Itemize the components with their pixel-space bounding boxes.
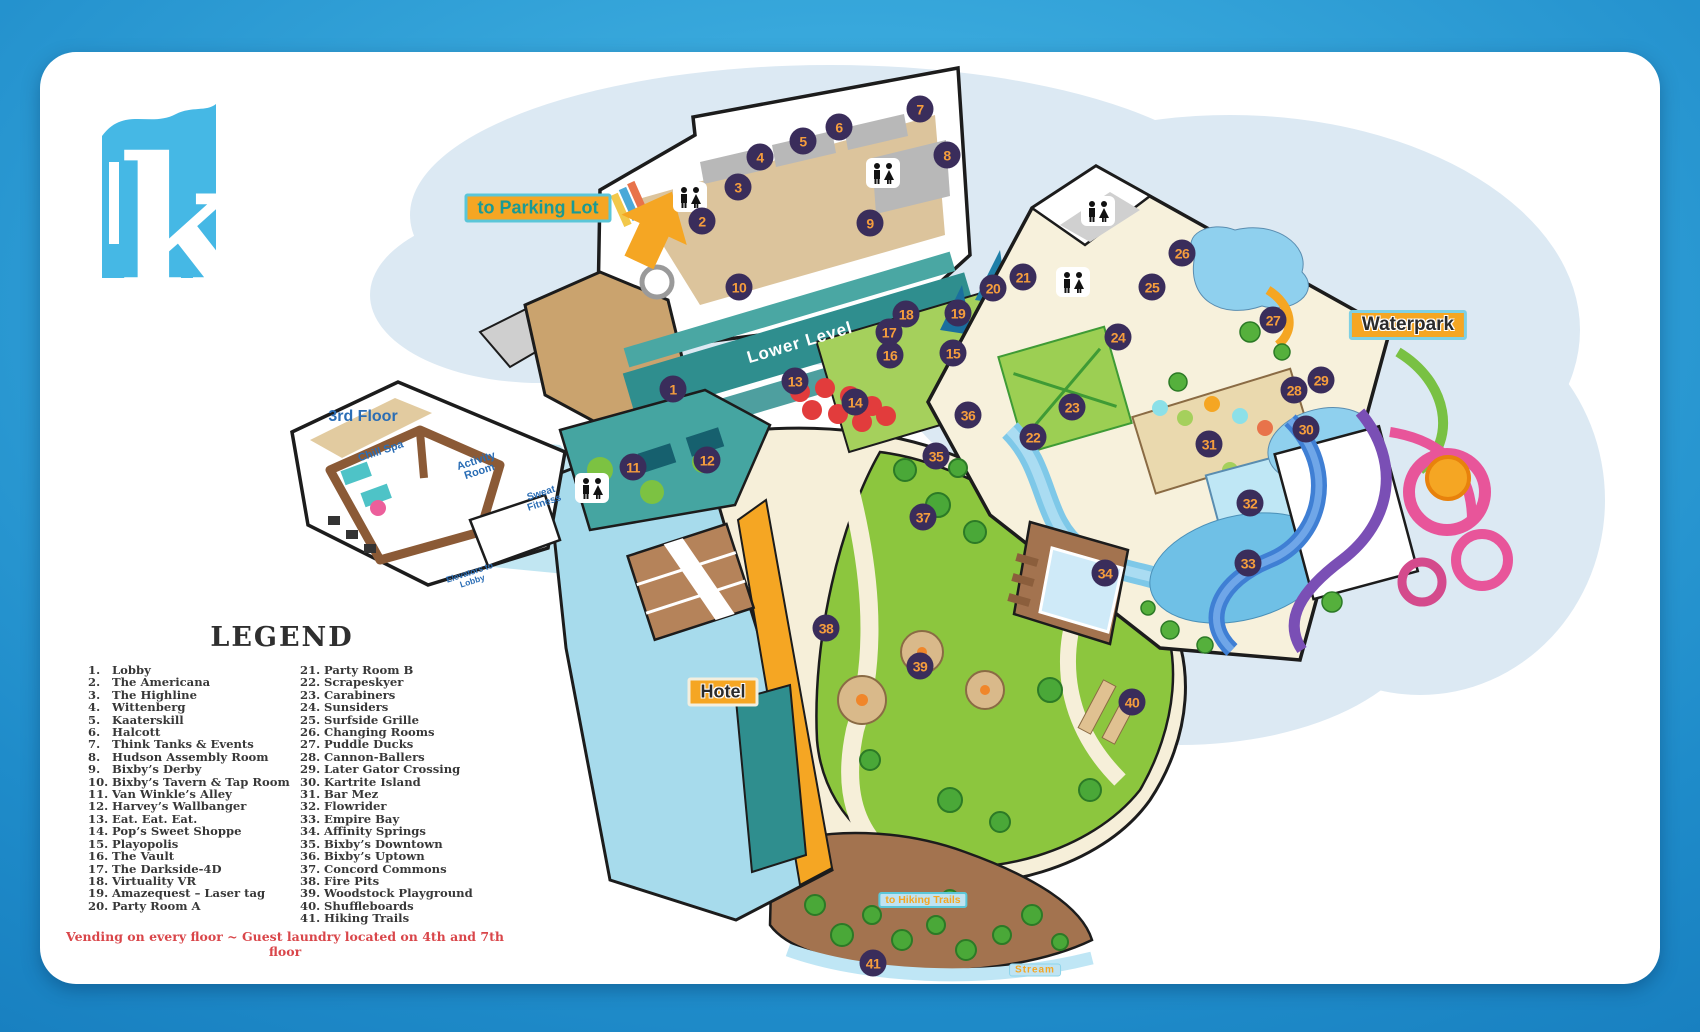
legend-item-label: Amazequest – Laser tag: [112, 887, 290, 899]
legend-item-number: 19.: [88, 887, 112, 899]
legend-item-number: 22.: [300, 676, 324, 688]
legend-item: 29.Later Gator Crossing: [300, 763, 528, 775]
legend-item: 24.Sunsiders: [300, 701, 528, 713]
map-marker: 11: [620, 454, 647, 481]
legend-item-number: 29.: [300, 763, 324, 775]
legend-item: 9.Bixby’s Derby: [88, 763, 290, 775]
legend-item-number: 36.: [300, 850, 324, 862]
legend-item: 14.Pop’s Sweet Shoppe: [88, 825, 290, 837]
map-marker: 23: [1059, 394, 1086, 421]
legend-item: 22.Scrapeskyer: [300, 676, 528, 688]
legend-item-label: Bixby’s Derby: [112, 763, 290, 775]
legend-item-label: Affinity Springs: [324, 825, 528, 837]
restroom-icon: [575, 473, 609, 503]
map-marker: 3: [725, 174, 752, 201]
legend-list: 1.Lobby2.The Americana3.The Highline4.Wi…: [88, 664, 528, 925]
legend-item: 39.Woodstock Playground: [300, 887, 528, 899]
legend-title: LEGEND: [82, 622, 482, 653]
map-marker: 37: [910, 504, 937, 531]
legend-item-label: Hiking Trails: [324, 912, 528, 924]
legend-item-label: The Americana: [112, 676, 290, 688]
legend-column-1: 1.Lobby2.The Americana3.The Highline4.Wi…: [88, 664, 290, 925]
legend-item-label: Bixby’s Uptown: [324, 850, 528, 862]
restroom-icon: [866, 158, 900, 188]
map-marker: 18: [893, 301, 920, 328]
map-marker: 33: [1235, 550, 1262, 577]
map-marker: 35: [923, 443, 950, 470]
resort-map-page: k: [0, 0, 1700, 1032]
legend-item-label: Woodstock Playground: [324, 887, 528, 899]
map-marker: 1: [660, 376, 687, 403]
map-marker: 2: [689, 208, 716, 235]
hotel-label: Hotel: [688, 678, 759, 707]
legend-item-number: 34.: [300, 825, 324, 837]
legend-item-number: 7.: [88, 738, 112, 750]
legend-item-label: Puddle Ducks: [324, 738, 528, 750]
map-marker: 27: [1260, 307, 1287, 334]
legend-item: 20.Party Room A: [88, 900, 290, 912]
map-marker: 30: [1293, 416, 1320, 443]
legend-item: 4.Wittenberg: [88, 701, 290, 713]
map-marker: 14: [842, 389, 869, 416]
legend-item: 2.The Americana: [88, 676, 290, 688]
map-marker: 38: [813, 615, 840, 642]
legend-item-label: The Vault: [112, 850, 290, 862]
map-marker: 9: [857, 210, 884, 237]
map-marker: 16: [877, 342, 904, 369]
legend-item: 16.The Vault: [88, 850, 290, 862]
map-marker: 21: [1010, 264, 1037, 291]
map-marker: 26: [1169, 240, 1196, 267]
map-marker: 39: [907, 653, 934, 680]
legend-item-label: Wittenberg: [112, 701, 290, 713]
map-marker: 20: [980, 275, 1007, 302]
legend-item-number: 41.: [300, 912, 324, 924]
map-marker: 8: [934, 142, 961, 169]
legend-item-label: Sunsiders: [324, 701, 528, 713]
hiking-trails-label: to Hiking Trails: [878, 892, 967, 908]
map-marker: 12: [694, 447, 721, 474]
legend-item: 27.Puddle Ducks: [300, 738, 528, 750]
restroom-icon: [1056, 267, 1090, 297]
legend-item: 32.Flowrider: [300, 800, 528, 812]
waterpark-label: Waterpark: [1349, 310, 1467, 340]
parking-label: to Parking Lot: [465, 194, 612, 223]
legend-item-label: Scrapeskyer: [324, 676, 528, 688]
map-marker: 13: [782, 368, 809, 395]
map-marker: 36: [955, 402, 982, 429]
legend-column-2: 21.Party Room B22.Scrapeskyer23.Carabine…: [300, 664, 528, 925]
map-marker: 40: [1119, 689, 1146, 716]
map-marker: 19: [945, 300, 972, 327]
map-marker: 28: [1281, 377, 1308, 404]
legend-item: 7.Think Tanks & Events: [88, 738, 290, 750]
map-marker: 34: [1092, 560, 1119, 587]
legend-item: 12.Harvey’s Wallbanger: [88, 800, 290, 812]
legend-item-number: 2.: [88, 676, 112, 688]
legend-item: 19.Amazequest – Laser tag: [88, 887, 290, 899]
legend-item-number: 14.: [88, 825, 112, 837]
legend-item-label: Flowrider: [324, 800, 528, 812]
legend-item-label: Think Tanks & Events: [112, 738, 290, 750]
stream-label: Stream: [1009, 964, 1061, 977]
legend-item-label: Pop’s Sweet Shoppe: [112, 825, 290, 837]
restroom-icon: [1081, 196, 1115, 226]
legend-item-label: Harvey’s Wallbanger: [112, 800, 290, 812]
legend-item-number: 4.: [88, 701, 112, 713]
legend-item-label: Party Room A: [112, 900, 290, 912]
map-marker: 15: [940, 340, 967, 367]
legend-item: 41.Hiking Trails: [300, 912, 528, 924]
map-marker: 31: [1196, 431, 1223, 458]
map-marker: 6: [826, 114, 853, 141]
legend-item-number: 12.: [88, 800, 112, 812]
third-floor-label: 3rd Floor: [328, 408, 397, 426]
legend-item-number: 16.: [88, 850, 112, 862]
map-marker: 10: [726, 274, 753, 301]
legend-item-number: 32.: [300, 800, 324, 812]
map-marker: 5: [790, 128, 817, 155]
legend-item-number: 20.: [88, 900, 112, 912]
map-marker: 29: [1308, 367, 1335, 394]
legend-footnote: Vending on every floor ~ Guest laundry l…: [60, 929, 510, 959]
map-marker: 41: [860, 950, 887, 977]
map-marker: 7: [907, 96, 934, 123]
legend-item-number: 27.: [300, 738, 324, 750]
legend-item-number: 9.: [88, 763, 112, 775]
legend-item-number: 39.: [300, 887, 324, 899]
legend-item-number: 24.: [300, 701, 324, 713]
legend-item: 36.Bixby’s Uptown: [300, 850, 528, 862]
map-marker: 25: [1139, 274, 1166, 301]
legend-item: 34.Affinity Springs: [300, 825, 528, 837]
map-marker: 24: [1105, 324, 1132, 351]
map-marker: 32: [1237, 490, 1264, 517]
map-marker: 4: [747, 144, 774, 171]
legend-item-label: Later Gator Crossing: [324, 763, 528, 775]
map-marker: 22: [1020, 424, 1047, 451]
